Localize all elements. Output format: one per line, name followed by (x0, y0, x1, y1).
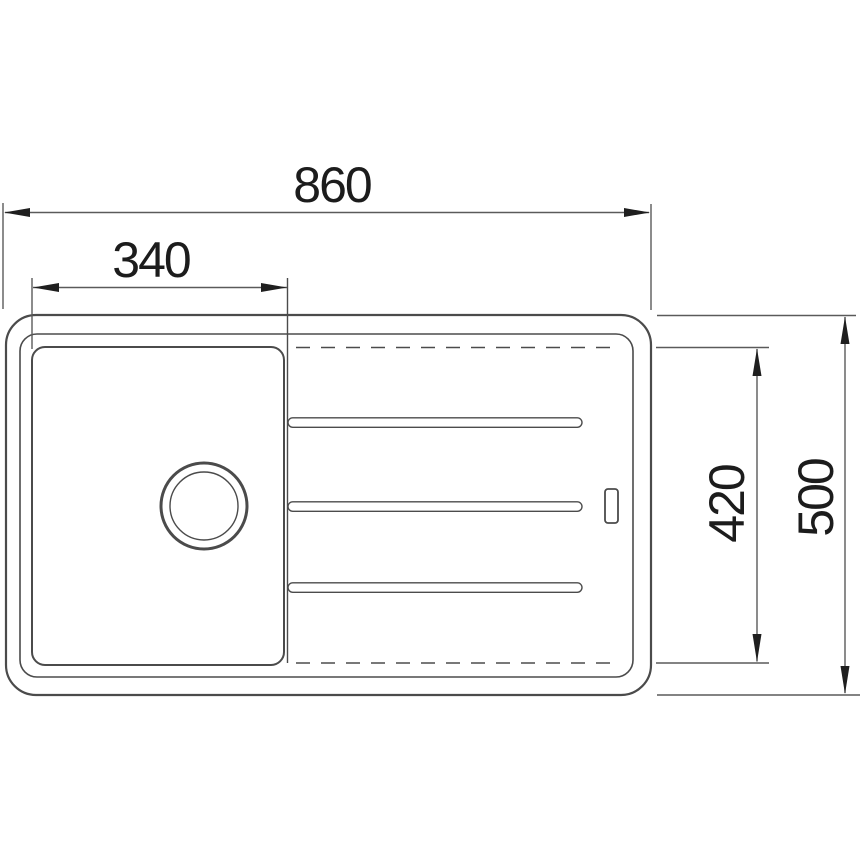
dim-label-inner-depth: 420 (699, 465, 755, 543)
sink-drawing-svg: 860 340 420 500 (0, 0, 860, 860)
arrow-right-icon (261, 283, 287, 292)
overflow-slot-icon (605, 489, 618, 523)
sink-outline-group (6, 278, 651, 695)
sink-outer-edge (6, 315, 651, 695)
dim-label-bowl-width: 340 (112, 232, 190, 288)
drain-inner-circle (170, 472, 238, 540)
groove-middle (288, 502, 582, 512)
dimension-bowl-width: 340 (32, 232, 287, 349)
drain-outer-circle (161, 463, 247, 549)
arrow-up-icon (841, 317, 850, 345)
dim-label-overall-depth: 500 (788, 459, 844, 537)
arrow-down-icon (753, 634, 762, 662)
arrow-up-icon (753, 349, 762, 377)
arrow-down-icon (841, 666, 850, 694)
groove-top (288, 418, 582, 428)
dimension-inner-depth: 420 (656, 348, 769, 664)
drainboard-grooves (288, 418, 582, 593)
arrow-right-icon (624, 208, 650, 217)
arrow-left-icon (33, 283, 59, 292)
sink-inner-rim (20, 334, 633, 677)
technical-drawing: 860 340 420 500 (0, 0, 860, 860)
dim-label-overall-width: 860 (293, 157, 371, 213)
arrow-left-icon (4, 208, 30, 217)
groove-bottom (288, 583, 582, 593)
drain-hole-icon (161, 463, 247, 549)
